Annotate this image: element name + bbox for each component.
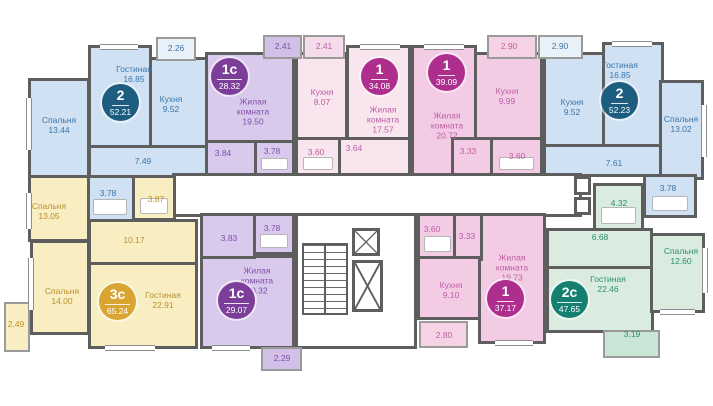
elevator-x-icon: [355, 263, 380, 309]
room-name-text: Спальня: [45, 286, 79, 296]
room-area-text: 16.85: [609, 70, 630, 80]
room-name-text: Гостиная: [145, 290, 181, 300]
room-name-text: Кухня: [160, 94, 183, 104]
room-area-text: 3.19: [624, 329, 641, 339]
room-name-text: Гостиная: [602, 60, 638, 70]
room-area-text: 2.49: [8, 319, 25, 329]
room-area-text: 2.90: [552, 41, 569, 51]
apartment-type: 1: [438, 58, 456, 75]
room-name-text: Спальня: [664, 114, 698, 124]
apt4-kitchen-label: Кухня9.99: [496, 86, 519, 106]
apt8-balcony-label: 2.80: [436, 330, 453, 340]
window: [424, 44, 464, 50]
apt9-bath-label: 4.32: [611, 198, 628, 208]
apt5-bath: [643, 174, 697, 218]
apt1-kitchen-label: Кухня9.52: [160, 94, 183, 114]
apt6-badge[interactable]: 3с65.24: [99, 283, 136, 320]
window: [212, 345, 250, 351]
apt6-bedroom1-label: Спальня13.05: [32, 201, 66, 221]
apt1-bath-label: 3.78: [100, 188, 117, 198]
apt3-kitchen-label: Кухня8.07: [311, 87, 334, 107]
apt3-badge[interactable]: 134.08: [361, 58, 398, 95]
room-area-text: 2.41: [275, 41, 292, 51]
room-name-text: Кухня: [561, 97, 584, 107]
apartment-type: 1: [497, 284, 515, 301]
apt7-badge[interactable]: 1с29.07: [218, 282, 255, 319]
room-area-text: 2.26: [168, 43, 185, 53]
room-area-text: 19.50: [242, 117, 263, 127]
apt1-bath: [85, 175, 135, 222]
apartment-total-area: 37.17: [495, 302, 516, 313]
room-area-text: 3.33: [460, 146, 477, 156]
room-area-text: 13.02: [670, 124, 691, 134]
apartment-type: 2с: [557, 285, 583, 302]
room-area-text: 3.60: [424, 224, 441, 234]
room-area-text: 3.87: [148, 194, 165, 204]
apt4-hall-label: 3.33: [460, 146, 477, 156]
room-name-text: Гостиная: [116, 64, 152, 74]
room-area-text: 13.44: [48, 125, 69, 135]
apt5-bedroom-label: Спальня13.02: [664, 114, 698, 134]
apt4-hall: [451, 137, 493, 176]
room-area-text: 20.72: [436, 131, 457, 141]
apt5-badge[interactable]: 252.23: [601, 82, 638, 119]
apartment-type: 2: [611, 86, 629, 103]
apt1-balcony-label: 2.26: [168, 43, 185, 53]
apartment-type: 3с: [105, 287, 131, 304]
service-shaft: [574, 176, 591, 195]
apt2-main-label: Жилая комната19.50: [225, 97, 281, 128]
apartment-total-area: 52.23: [609, 104, 630, 115]
apt8-bath: [417, 213, 458, 259]
room-name-text: Жилая комната: [419, 111, 475, 131]
room-area-text: 3.83: [221, 233, 238, 243]
apt5-living-label: Гостиная16.85: [602, 60, 638, 80]
apartment-total-area: 47.65: [559, 303, 580, 314]
apt4-badge[interactable]: 139.09: [428, 54, 465, 91]
apt6-bath-label: 3.87: [148, 194, 165, 204]
apt5-bath-label: 3.78: [660, 183, 677, 193]
apt1-bedroom-label: Спальня13.44: [42, 115, 76, 135]
apt3-bath-label: 3.60: [308, 147, 325, 157]
window: [612, 41, 652, 47]
window: [105, 345, 155, 351]
apt1-badge[interactable]: 252.21: [102, 84, 139, 121]
apartment-total-area: 65.24: [107, 305, 128, 316]
apt7-bath: [253, 213, 295, 255]
apt4-bath-label: 3.60: [509, 151, 526, 161]
room-name-text: Жилая комната: [484, 253, 540, 273]
room-name-text: Жилая комната: [225, 97, 281, 117]
apartment-total-area: 34.08: [369, 80, 390, 91]
room-area-text: 3.33: [459, 231, 476, 241]
room-area-text: 17.57: [372, 125, 393, 135]
apt7-balcony-label: 2.29: [274, 353, 291, 363]
room-area-text: 3.78: [264, 146, 281, 156]
room-area-text: 13.05: [38, 211, 59, 221]
apartment-type: 1с: [224, 286, 250, 303]
room-area-text: 14.00: [51, 296, 72, 306]
apt2-bath-label: 3.78: [264, 146, 281, 156]
apartment-total-area: 52.21: [110, 106, 131, 117]
room-area-text: 9.10: [443, 290, 460, 300]
window: [495, 340, 533, 346]
room-name-text: Жилая комната: [355, 105, 411, 125]
room-area-text: 7.49: [135, 156, 152, 166]
room-name-text: Кухня: [496, 86, 519, 96]
room-name-text: Гостиная: [590, 274, 626, 284]
apt8-bath-label: 3.60: [424, 224, 441, 234]
floor-plan: Гостиная16.85 Кухня9.52 Спальня13.44 7.4…: [0, 0, 713, 406]
room-area-text: 6.68: [592, 232, 609, 242]
apartment-type: 1с: [217, 62, 243, 79]
room-area-text: 9.52: [564, 107, 581, 117]
room-name-text: Спальня: [664, 246, 698, 256]
apt4-balcony-label: 2.90: [501, 41, 518, 51]
room-area-text: 3.60: [509, 151, 526, 161]
window: [100, 44, 138, 50]
elevator-large: [352, 260, 383, 312]
apt8-badge[interactable]: 137.17: [487, 280, 524, 317]
apt3-hall-label: 3.64: [346, 143, 363, 153]
room-name-text: Спальня: [32, 201, 66, 211]
staircase: [302, 243, 348, 315]
apt2-hall-label: 3.84: [215, 148, 232, 158]
room-area-text: 3.60: [308, 147, 325, 157]
apartment-total-area: 29.07: [226, 304, 247, 315]
room-area-text: 3.64: [346, 143, 363, 153]
apt7-hall-label: 3.83: [221, 233, 238, 243]
room-area-text: 3.78: [264, 223, 281, 233]
apt5-hall-label: 7.61: [606, 158, 623, 168]
apt3-main-label: Жилая комната17.57: [355, 105, 411, 136]
apt1-living-label: Гостиная16.85: [116, 64, 152, 84]
room-name-text: Спальня: [42, 115, 76, 125]
window: [26, 98, 32, 150]
apt1-hall-label: 7.49: [135, 156, 152, 166]
room-area-text: 10.17: [123, 235, 144, 245]
window: [701, 105, 707, 157]
room-area-text: 22.91: [152, 300, 173, 310]
apt6-hall-label: 10.17: [123, 235, 144, 245]
apartment-type: 2: [112, 88, 130, 105]
elevator-small: [352, 228, 380, 256]
apt9-badge[interactable]: 2с47.65: [551, 281, 588, 318]
room-area-text: 16.85: [123, 74, 144, 84]
room-area-text: 4.32: [611, 198, 628, 208]
room-area-text: 2.41: [316, 41, 333, 51]
apt9-hall-label: 6.68: [592, 232, 609, 242]
apt6-balcony-label: 2.49: [8, 319, 25, 329]
apt9-living-label: Гостиная22.46: [590, 274, 626, 294]
room-area-text: 3.78: [100, 188, 117, 198]
common-corridor: [172, 173, 582, 217]
room-area-text: 2.80: [436, 330, 453, 340]
apt5-kitchen-label: Кухня9.52: [561, 97, 584, 117]
room-area-text: 8.07: [314, 97, 331, 107]
room-area-text: 2.90: [501, 41, 518, 51]
room-area-text: 2.29: [274, 353, 291, 363]
apartment-total-area: 28.32: [219, 80, 240, 91]
apt9-bedroom-label: Спальня12.60: [664, 246, 698, 266]
apt3-balcony-label: 2.41: [316, 41, 333, 51]
apt5-balcony-label: 2.90: [552, 41, 569, 51]
apt2-badge[interactable]: 1с28.32: [211, 58, 248, 95]
apt8-kitchen-label: Кухня9.10: [440, 280, 463, 300]
room-area-text: 22.46: [597, 284, 618, 294]
room-area-text: 9.52: [163, 104, 180, 114]
apt6-bedroom2-label: Спальня14.00: [45, 286, 79, 306]
room-area-text: 9.99: [499, 96, 516, 106]
apartment-type: 1: [371, 62, 389, 79]
room-name-text: Кухня: [311, 87, 334, 97]
apt9-balcony-label: 3.19: [624, 329, 641, 339]
apartment-total-area: 39.09: [436, 76, 457, 87]
service-shaft: [574, 197, 591, 215]
window: [660, 309, 695, 315]
window: [360, 44, 400, 50]
apt8-hall-label: 3.33: [459, 231, 476, 241]
apt6-living-label: Гостиная22.91: [145, 290, 181, 310]
room-area-text: 3.78: [660, 183, 677, 193]
room-area-text: 12.60: [670, 256, 691, 266]
room-name-text: Кухня: [440, 280, 463, 290]
room-area-text: 3.84: [215, 148, 232, 158]
apt2-balcony-label: 2.41: [275, 41, 292, 51]
elevator-x-icon: [355, 231, 377, 253]
apt8-main-label: Жилая комната19.73: [484, 253, 540, 284]
room-area-text: 7.61: [606, 158, 623, 168]
window: [702, 248, 708, 293]
apt4-main-label: Жилая комната20.72: [419, 111, 475, 142]
window: [28, 258, 34, 310]
apt7-bath-label: 3.78: [264, 223, 281, 233]
